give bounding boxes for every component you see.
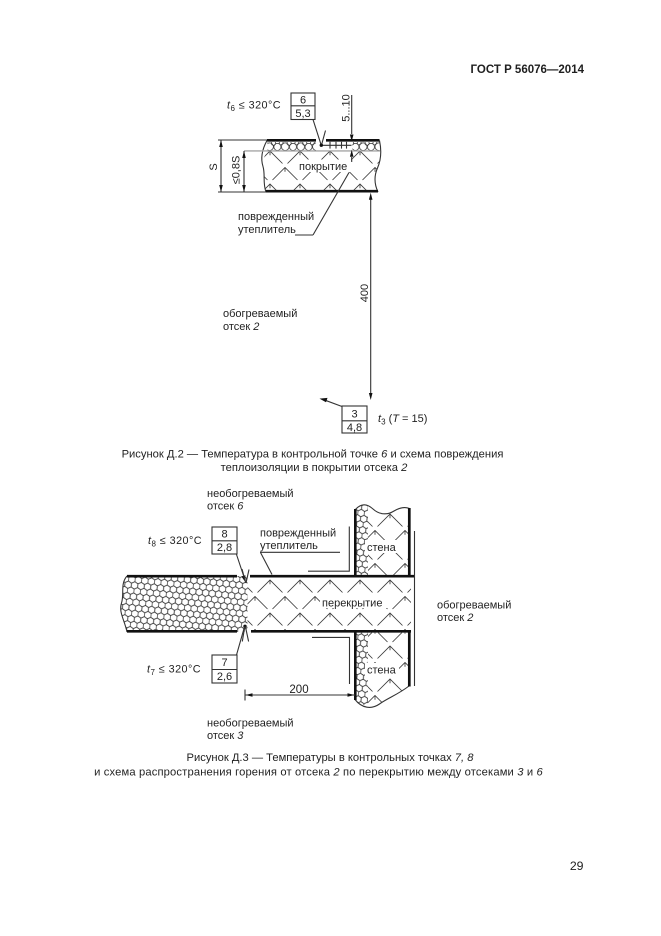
svg-text:3: 3	[351, 409, 357, 421]
svg-text:t8 ≤ 320°C: t8 ≤ 320°C	[148, 535, 202, 549]
svg-text:2,8: 2,8	[217, 542, 232, 554]
svg-text:отсек 2: отсек 2	[437, 612, 473, 624]
svg-text:t6 ≤ 320°C: t6 ≤ 320°C	[227, 100, 281, 114]
svg-text:t7 ≤ 320°C: t7 ≤ 320°C	[147, 664, 201, 678]
svg-text:400: 400	[359, 284, 371, 302]
svg-text:обогреваемый: обогреваемый	[437, 600, 511, 612]
svg-text:перекрытие: перекрытие	[322, 598, 382, 610]
svg-text:поврежденный: поврежденный	[260, 528, 336, 540]
svg-text:Рисунок Д.2 — Температура в ко: Рисунок Д.2 — Температура в контрольной …	[122, 449, 504, 461]
svg-text:5...10: 5...10	[341, 94, 353, 122]
svg-text:необогреваемый: необогреваемый	[207, 488, 294, 500]
svg-text:5,3: 5,3	[295, 108, 310, 120]
svg-text:утеплитель: утеплитель	[260, 540, 318, 552]
svg-text:6: 6	[300, 95, 306, 107]
svg-text:стена: стена	[367, 542, 397, 554]
svg-text:обогреваемый: обогреваемый	[223, 308, 297, 320]
svg-text:необогреваемый: необогреваемый	[207, 718, 294, 730]
svg-text:4,8: 4,8	[347, 422, 362, 434]
svg-text:2,6: 2,6	[217, 671, 232, 683]
svg-text:покрытие: покрытие	[299, 161, 347, 173]
svg-text:поврежденный: поврежденный	[238, 211, 314, 223]
svg-text:стена: стена	[367, 665, 397, 677]
svg-text:8: 8	[221, 529, 227, 541]
svg-text:200: 200	[289, 684, 308, 696]
svg-text:ГОСТ Р 56076—2014: ГОСТ Р 56076—2014	[471, 64, 585, 76]
svg-text:утеплитель: утеплитель	[238, 224, 296, 236]
svg-text:t3 (T = 15): t3 (T = 15)	[378, 413, 427, 427]
svg-text:теплоизоляции в покрытии отсек: теплоизоляции в покрытии отсека 2	[221, 462, 408, 474]
svg-text:≤0,8S: ≤0,8S	[231, 156, 243, 185]
svg-text:29: 29	[570, 859, 584, 873]
svg-text:отсек 3: отсек 3	[207, 730, 244, 742]
svg-text:отсек 2: отсек 2	[223, 321, 259, 333]
svg-text:и схема распространения горени: и схема распространения горения от отсек…	[94, 767, 543, 779]
svg-text:отсек 6: отсек 6	[207, 501, 244, 513]
svg-text:S: S	[208, 163, 220, 170]
svg-text:Рисунок Д.3 — Температуры в ко: Рисунок Д.3 — Температуры в контрольных …	[187, 752, 475, 764]
svg-text:7: 7	[221, 657, 227, 669]
